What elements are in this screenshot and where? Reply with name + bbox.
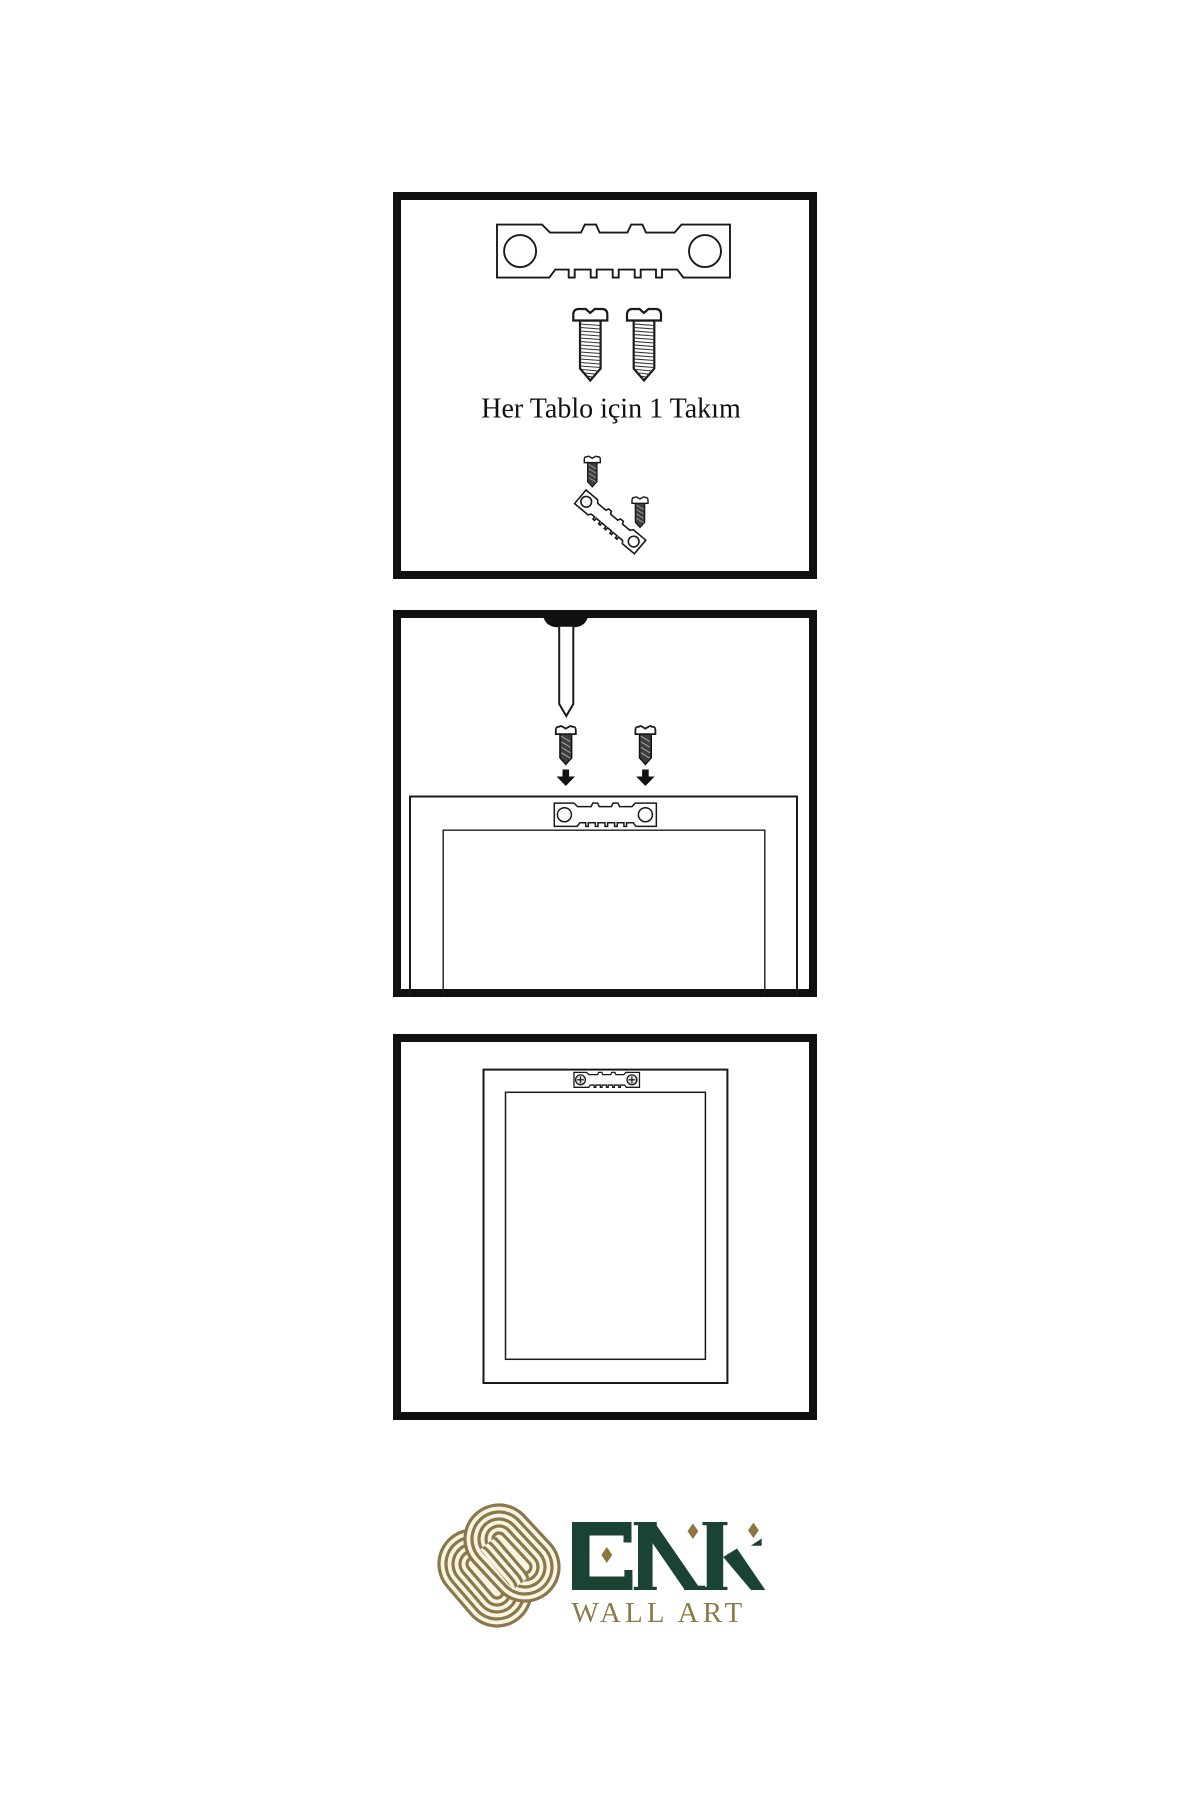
svg-text:Her Tablo için 1 Takım: Her Tablo için 1 Takım	[481, 394, 741, 425]
svg-text:WALL ART: WALL ART	[572, 1597, 747, 1629]
